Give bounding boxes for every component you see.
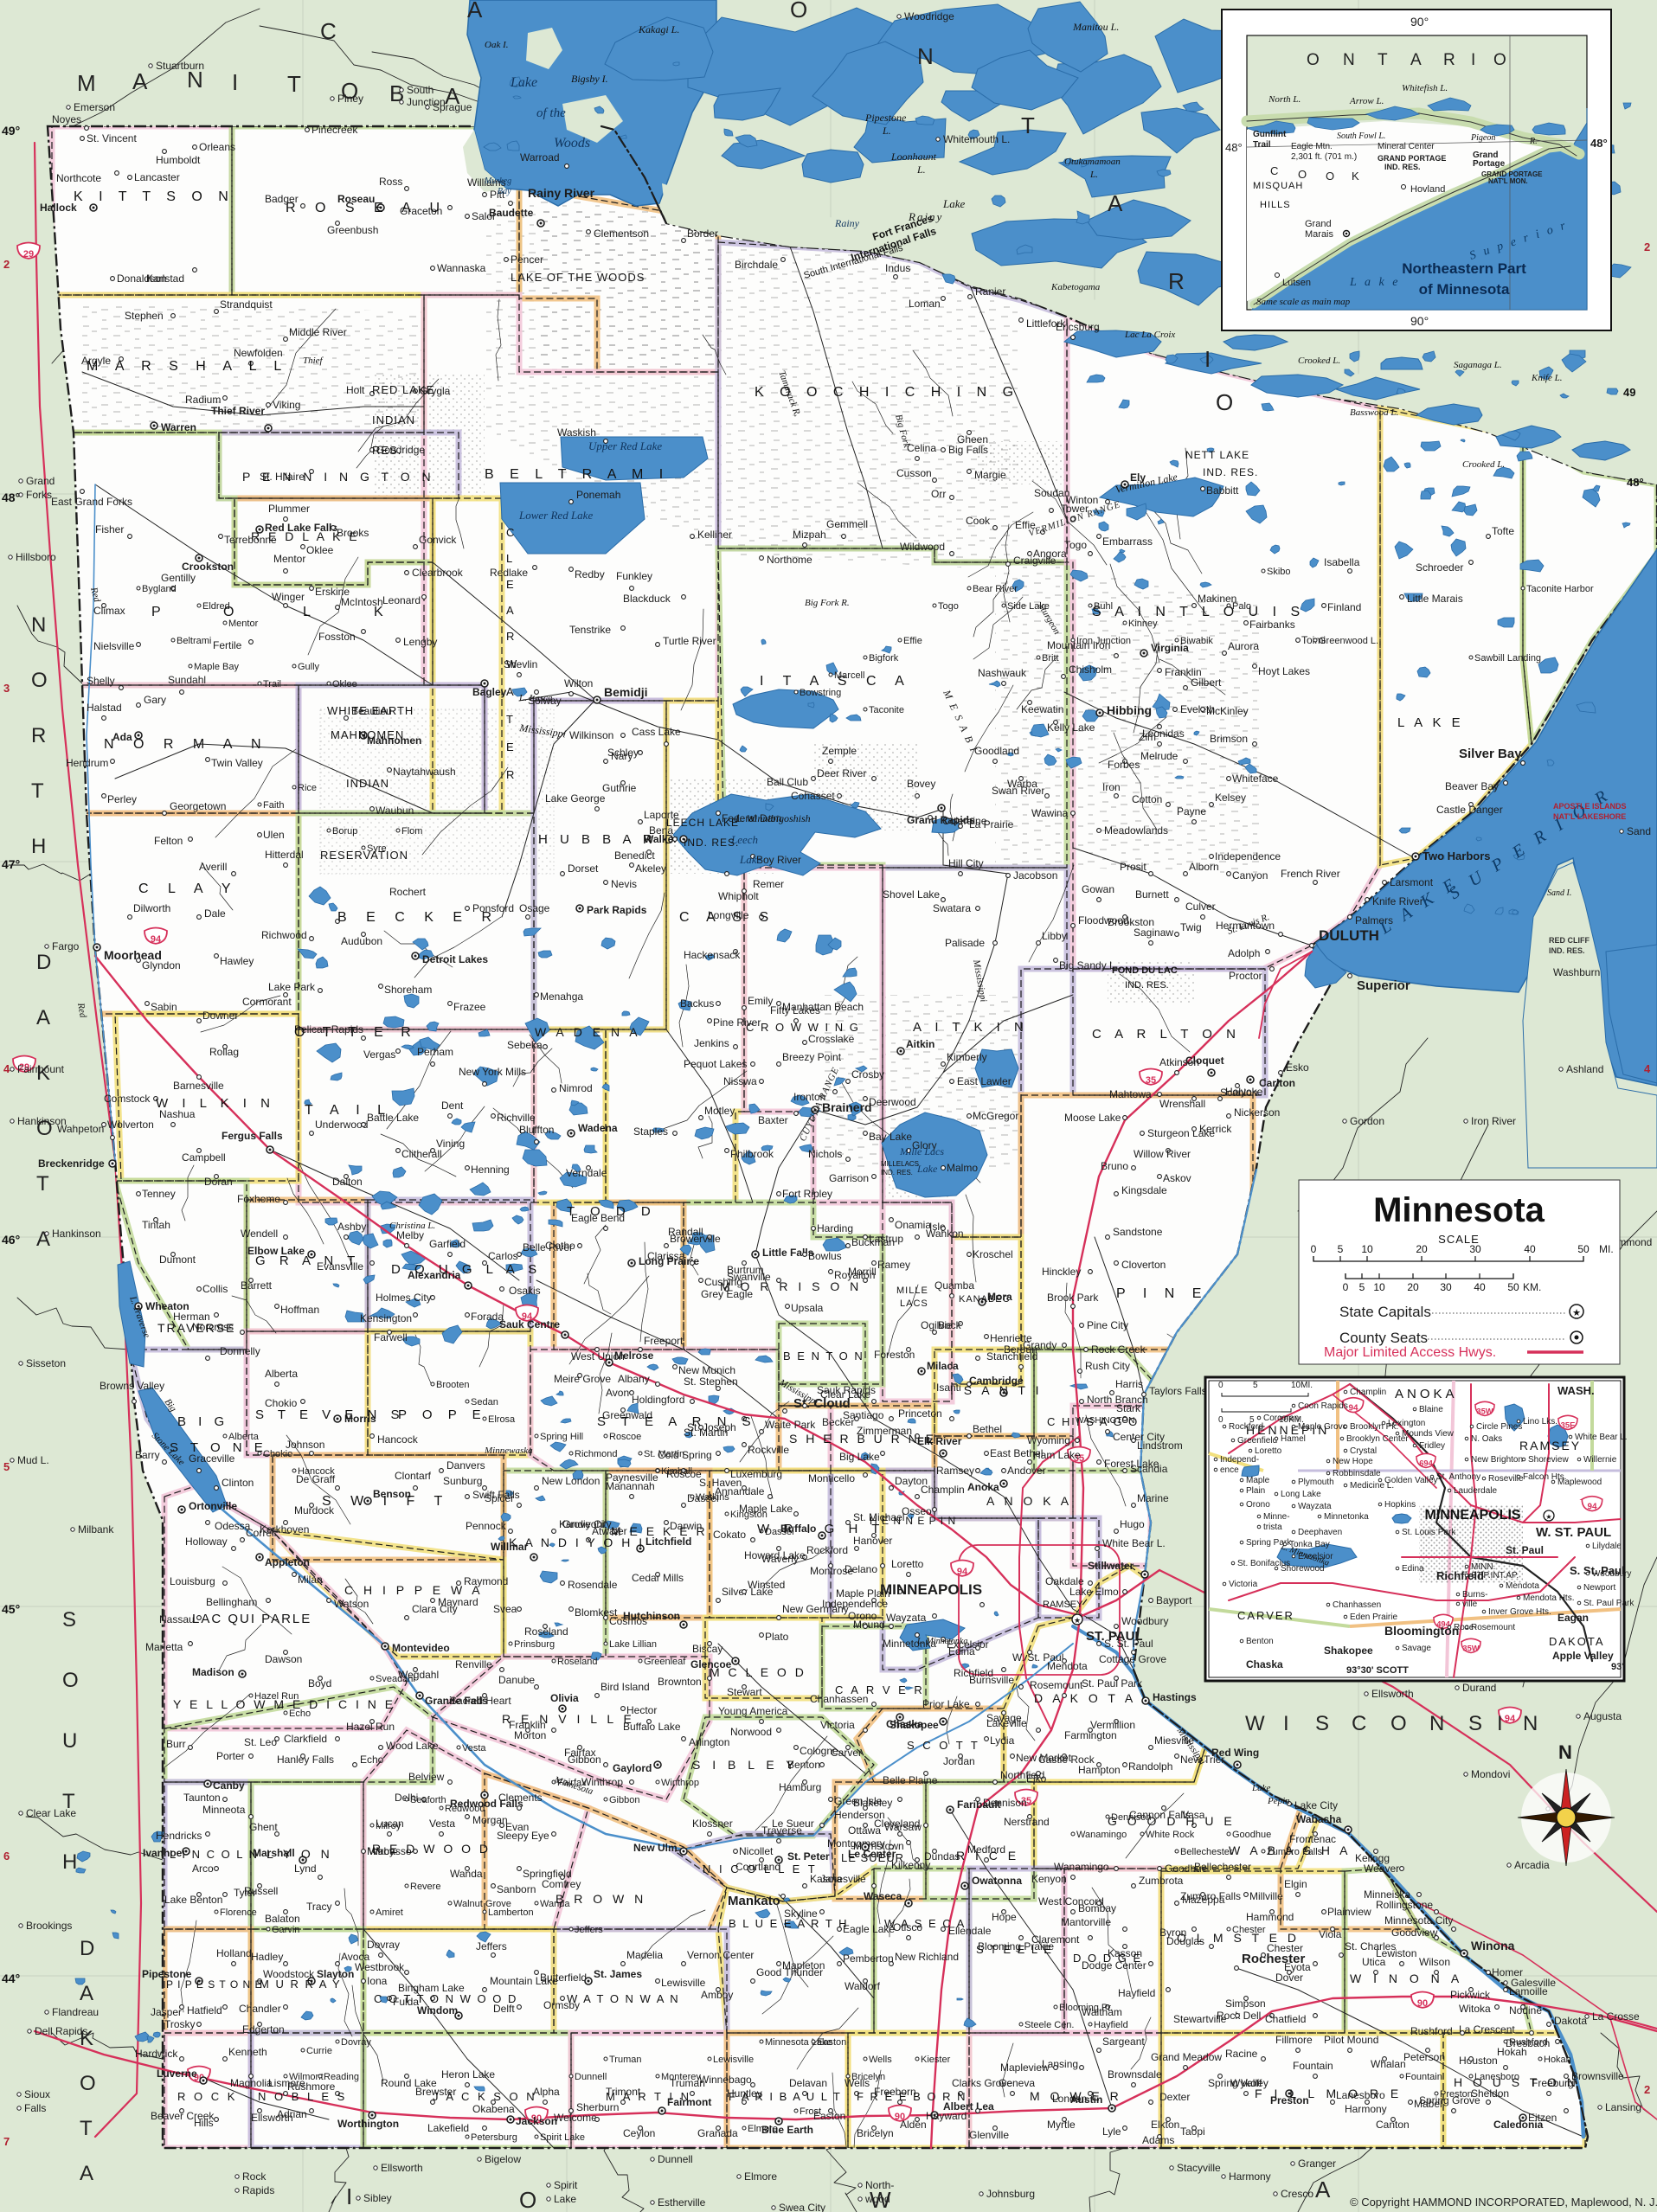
svg-text:DULUTH: DULUTH bbox=[1319, 927, 1379, 944]
svg-text:Hokah: Hokah bbox=[1544, 2055, 1571, 2065]
svg-text:Victoria: Victoria bbox=[820, 1719, 855, 1731]
svg-text:S C O T T: S C O T T bbox=[907, 1739, 980, 1752]
svg-text:Henriette: Henriette bbox=[990, 1332, 1032, 1344]
svg-text:Harmony: Harmony bbox=[1229, 2170, 1271, 2183]
svg-text:N: N bbox=[1558, 1741, 1572, 1763]
svg-text:Racine: Racine bbox=[1225, 2048, 1258, 2060]
svg-text:White Bear L.: White Bear L. bbox=[1102, 1537, 1166, 1549]
svg-text:Bigfork: Bigfork bbox=[869, 653, 899, 664]
svg-text:Minnewaska: Minnewaska bbox=[484, 1446, 533, 1456]
svg-text:Lynd: Lynd bbox=[294, 1863, 317, 1875]
svg-text:Bellingham: Bellingham bbox=[206, 1596, 257, 1608]
svg-text:Edgerton: Edgerton bbox=[242, 2023, 285, 2036]
svg-text:Welcome: Welcome bbox=[554, 2112, 597, 2124]
svg-text:Spring Hill: Spring Hill bbox=[540, 1432, 583, 1442]
svg-text:Y E L L O W M E D I C I N E: Y E L L O W M E D I C I N E bbox=[173, 1697, 395, 1711]
svg-text:Perham: Perham bbox=[417, 1046, 453, 1058]
svg-text:R E D W O O D: R E D W O O D bbox=[372, 1842, 491, 1856]
svg-text:Aurora: Aurora bbox=[1228, 640, 1259, 652]
svg-text:Lake: Lake bbox=[942, 197, 966, 210]
svg-text:La Crescent: La Crescent bbox=[1459, 2023, 1515, 2036]
svg-text:Melrude: Melrude bbox=[1140, 750, 1179, 762]
svg-text:Hackensack: Hackensack bbox=[684, 949, 741, 961]
svg-text:Luverne: Luverne bbox=[157, 2068, 197, 2080]
svg-text:North L.: North L. bbox=[1268, 94, 1301, 105]
svg-text:94: 94 bbox=[1349, 1404, 1358, 1414]
svg-text:Clear Lake: Clear Lake bbox=[820, 1388, 870, 1401]
svg-text:S W I F T: S W I F T bbox=[322, 1494, 450, 1509]
svg-text:Clear Lake: Clear Lake bbox=[26, 1807, 76, 1819]
svg-text:Balaton: Balaton bbox=[265, 1913, 300, 1925]
svg-text:5: 5 bbox=[1359, 1281, 1365, 1293]
svg-text:4: 4 bbox=[3, 1062, 10, 1075]
svg-text:Mounds View: Mounds View bbox=[1402, 1429, 1455, 1439]
svg-text:Boyd: Boyd bbox=[308, 1677, 331, 1689]
svg-text:S T O N E: S T O N E bbox=[170, 1440, 267, 1455]
svg-text:TRAVERSE: TRAVERSE bbox=[157, 1321, 235, 1335]
svg-text:Flom: Flom bbox=[401, 826, 422, 837]
svg-text:Culver: Culver bbox=[1185, 901, 1216, 913]
svg-text:Lake: Lake bbox=[739, 853, 762, 866]
svg-text:30: 30 bbox=[1440, 1281, 1452, 1293]
svg-text:Ceylon: Ceylon bbox=[623, 2127, 655, 2139]
svg-text:McGregor: McGregor bbox=[973, 1110, 1018, 1122]
svg-text:Hamburg: Hamburg bbox=[779, 1781, 821, 1793]
svg-text:St. Leo: St. Leo bbox=[244, 1736, 277, 1748]
svg-text:T O D D: T O D D bbox=[567, 1204, 657, 1219]
svg-text:Winsted: Winsted bbox=[748, 1579, 785, 1591]
svg-text:Viking: Viking bbox=[273, 399, 300, 411]
svg-text:LACS: LACS bbox=[900, 1298, 928, 1309]
svg-text:40: 40 bbox=[1474, 1281, 1486, 1293]
svg-text:Tracy: Tracy bbox=[306, 1901, 332, 1913]
svg-text:Melby: Melby bbox=[396, 1229, 424, 1241]
svg-text:S I B L E Y: S I B L E Y bbox=[692, 1758, 799, 1772]
svg-text:Whipholt: Whipholt bbox=[718, 890, 759, 902]
svg-text:2,301 ft. (701 m.): 2,301 ft. (701 m.) bbox=[1291, 152, 1357, 162]
svg-text:Loman: Loman bbox=[909, 298, 941, 310]
svg-text:Vining: Vining bbox=[436, 1138, 465, 1150]
svg-text:Dell Rapids: Dell Rapids bbox=[35, 2025, 87, 2037]
svg-text:C A S S: C A S S bbox=[679, 910, 775, 925]
svg-text:Hanley Falls: Hanley Falls bbox=[277, 1754, 334, 1766]
svg-text:W: W bbox=[506, 657, 517, 670]
svg-text:Hendricks: Hendricks bbox=[156, 1830, 202, 1842]
svg-text:T A I L: T A I L bbox=[305, 1103, 392, 1118]
svg-text:Independ-: Independ- bbox=[1220, 1455, 1259, 1465]
svg-text:Libby: Libby bbox=[1042, 930, 1067, 942]
svg-text:Backus: Backus bbox=[680, 997, 714, 1010]
svg-text:O: O bbox=[80, 2072, 96, 2095]
svg-text:Moose Lake: Moose Lake bbox=[1064, 1112, 1121, 1124]
svg-text:0: 0 bbox=[1343, 1281, 1349, 1293]
svg-text:Lake Lillian: Lake Lillian bbox=[609, 1639, 657, 1650]
svg-text:Trosky: Trosky bbox=[164, 2018, 196, 2030]
svg-text:Pequot Lakes: Pequot Lakes bbox=[684, 1058, 747, 1070]
svg-text:Lyle: Lyle bbox=[1102, 2125, 1121, 2138]
svg-text:Brooklyn Pk.: Brooklyn Pk. bbox=[1350, 1422, 1398, 1432]
svg-text:Mentor: Mentor bbox=[273, 553, 305, 565]
svg-text:Gary: Gary bbox=[144, 694, 166, 706]
svg-text:B R O W N: B R O W N bbox=[556, 1892, 646, 1906]
svg-text:Marais: Marais bbox=[1305, 229, 1334, 240]
svg-text:Milbank: Milbank bbox=[78, 1523, 114, 1536]
svg-text:Bruno: Bruno bbox=[1101, 1160, 1128, 1172]
svg-text:Wayzata: Wayzata bbox=[886, 1612, 927, 1624]
svg-text:Babbitt: Babbitt bbox=[1206, 484, 1239, 497]
svg-text:Hoyt Lakes: Hoyt Lakes bbox=[1258, 665, 1310, 677]
svg-text:Rushford: Rushford bbox=[1410, 2025, 1453, 2037]
svg-text:Sacred Heart: Sacred Heart bbox=[450, 1695, 511, 1707]
svg-text:Greenwood L.: Greenwood L. bbox=[1319, 636, 1378, 646]
svg-text:48°: 48° bbox=[1590, 137, 1608, 150]
svg-text:IND. RES.: IND. RES. bbox=[1125, 980, 1169, 991]
svg-text:Rollag: Rollag bbox=[209, 1046, 239, 1058]
svg-text:Crookston: Crookston bbox=[182, 561, 234, 573]
svg-text:Rockford: Rockford bbox=[806, 1544, 848, 1556]
svg-text:HILLS: HILLS bbox=[1260, 200, 1291, 210]
svg-text:Pickwick: Pickwick bbox=[1450, 1989, 1491, 2001]
svg-text:Cohasset: Cohasset bbox=[791, 790, 835, 802]
svg-text:Knife L.: Knife L. bbox=[1531, 373, 1562, 383]
svg-text:O: O bbox=[790, 0, 807, 22]
svg-text:Savage: Savage bbox=[1402, 1644, 1431, 1653]
svg-text:St. Peter: St. Peter bbox=[787, 1850, 830, 1863]
svg-text:Monterey: Monterey bbox=[661, 2072, 701, 2082]
svg-text:Heron Lake: Heron Lake bbox=[441, 2068, 495, 2081]
svg-text:Elgin: Elgin bbox=[1284, 1878, 1307, 1890]
svg-text:Dunnell: Dunnell bbox=[658, 2153, 693, 2165]
svg-text:Bay Lake: Bay Lake bbox=[869, 1131, 912, 1143]
svg-text:Rosendale: Rosendale bbox=[568, 1579, 618, 1591]
svg-text:Ross: Ross bbox=[379, 176, 402, 188]
svg-text:Gentilly: Gentilly bbox=[161, 572, 196, 584]
svg-text:Two Harbors: Two Harbors bbox=[1423, 850, 1491, 862]
svg-text:Faith: Faith bbox=[263, 800, 284, 811]
svg-text:Vesta: Vesta bbox=[462, 1743, 486, 1754]
svg-text:35: 35 bbox=[1146, 1075, 1156, 1086]
svg-text:S. St. Paul: S. St. Paul bbox=[1104, 1638, 1153, 1650]
svg-text:N O B L E S: N O B L E S bbox=[258, 2090, 347, 2103]
svg-text:Akeley: Akeley bbox=[635, 862, 666, 875]
svg-text:W. ST. PAUL: W. ST. PAUL bbox=[1536, 1525, 1611, 1540]
svg-text:Bock: Bock bbox=[938, 1319, 962, 1331]
svg-text:Steele Cen.: Steele Cen. bbox=[1024, 2020, 1074, 2030]
svg-text:C: C bbox=[1352, 1712, 1366, 1735]
svg-text:Margie: Margie bbox=[974, 469, 1006, 481]
svg-text:Sprague: Sprague bbox=[433, 101, 472, 113]
svg-text:Cresco: Cresco bbox=[1281, 2188, 1313, 2200]
svg-text:Chanhassen: Chanhassen bbox=[1333, 1600, 1381, 1610]
svg-text:Stewart: Stewart bbox=[727, 1686, 762, 1698]
svg-text:Prior Lake: Prior Lake bbox=[922, 1698, 970, 1710]
svg-text:Sleepy Eye: Sleepy Eye bbox=[497, 1830, 549, 1842]
svg-text:Lilydale: Lilydale bbox=[1592, 1542, 1622, 1551]
svg-text:Newfolden: Newfolden bbox=[234, 347, 283, 359]
svg-text:Maple Grove: Maple Grove bbox=[1298, 1422, 1348, 1432]
svg-text:Clearbrook: Clearbrook bbox=[412, 567, 464, 579]
svg-text:Strandquist: Strandquist bbox=[220, 298, 273, 311]
svg-text:Cook: Cook bbox=[966, 515, 991, 527]
svg-text:APOSTLE ISLANDS: APOSTLE ISLANDS bbox=[1553, 802, 1627, 811]
svg-text:Nichols: Nichols bbox=[808, 1148, 842, 1160]
svg-text:Forbes: Forbes bbox=[1108, 759, 1140, 771]
svg-text:A: A bbox=[506, 685, 514, 698]
svg-text:Plummer: Plummer bbox=[268, 503, 310, 515]
svg-text:Shakopee: Shakopee bbox=[1324, 1645, 1373, 1657]
svg-text:Jeffers: Jeffers bbox=[476, 1940, 507, 1952]
svg-text:Cedar Mills: Cedar Mills bbox=[632, 1572, 684, 1584]
svg-text:★: ★ bbox=[1572, 1308, 1581, 1318]
svg-text:Wilton: Wilton bbox=[564, 677, 593, 689]
svg-text:Swea City: Swea City bbox=[779, 2202, 825, 2212]
svg-text:Thief River: Thief River bbox=[211, 405, 265, 417]
svg-text:Echo: Echo bbox=[360, 1754, 384, 1766]
svg-text:90: 90 bbox=[1417, 1998, 1428, 2009]
svg-text:Comstock: Comstock bbox=[104, 1093, 151, 1105]
svg-text:Jeffers: Jeffers bbox=[575, 1925, 603, 1935]
svg-text:Hankinson: Hankinson bbox=[52, 1228, 101, 1240]
svg-text:Mapleview: Mapleview bbox=[1000, 2061, 1050, 2074]
svg-text:Upper Red Lake: Upper Red Lake bbox=[588, 439, 662, 452]
svg-text:R E N V I L L E: R E N V I L L E bbox=[502, 1712, 635, 1726]
svg-text:Goodview: Goodview bbox=[1391, 1927, 1438, 1939]
svg-text:Edina: Edina bbox=[948, 1645, 975, 1657]
svg-text:Brooklyn Center: Brooklyn Center bbox=[1346, 1434, 1409, 1444]
svg-text:Danvers: Danvers bbox=[446, 1459, 485, 1471]
svg-text:Independence: Independence bbox=[1215, 850, 1281, 862]
svg-text:Ashby: Ashby bbox=[337, 1221, 366, 1233]
svg-text:W R I G H T: W R I G H T bbox=[757, 1522, 884, 1536]
svg-text:N: N bbox=[31, 613, 46, 637]
svg-text:Stuartburn: Stuartburn bbox=[156, 60, 204, 72]
svg-text:Willow River: Willow River bbox=[1134, 1148, 1191, 1160]
svg-text:Delano: Delano bbox=[845, 1563, 877, 1575]
svg-text:Winona: Winona bbox=[1471, 1939, 1515, 1952]
svg-text:Ellsworth: Ellsworth bbox=[1371, 1688, 1414, 1700]
svg-text:Hancock: Hancock bbox=[298, 1466, 335, 1477]
svg-text:Johnsburg: Johnsburg bbox=[986, 2188, 1035, 2200]
svg-text:Biscay: Biscay bbox=[692, 1643, 723, 1655]
svg-text:Payne: Payne bbox=[1177, 805, 1206, 817]
svg-text:Cloverton: Cloverton bbox=[1121, 1259, 1166, 1271]
svg-text:Sand: Sand bbox=[1627, 825, 1651, 837]
svg-text:Cologne: Cologne bbox=[800, 1745, 838, 1757]
svg-text:Eagan: Eagan bbox=[1557, 1612, 1589, 1624]
svg-text:Jasper: Jasper bbox=[151, 2006, 182, 2018]
svg-text:Cottage Grove: Cottage Grove bbox=[1099, 1653, 1166, 1665]
svg-text:Remer: Remer bbox=[753, 878, 784, 890]
svg-text:Chatfield: Chatfield bbox=[1265, 2013, 1306, 2025]
svg-text:A: A bbox=[506, 604, 514, 617]
svg-text:Andover: Andover bbox=[1007, 1465, 1046, 1477]
svg-text:Naytahwaush: Naytahwaush bbox=[393, 766, 456, 778]
svg-text:Bricelyn: Bricelyn bbox=[857, 2127, 894, 2139]
svg-text:St. Stephen: St. Stephen bbox=[684, 1375, 738, 1388]
svg-text:Chaska: Chaska bbox=[886, 1718, 923, 1730]
svg-text:Northome: Northome bbox=[767, 554, 812, 566]
svg-text:O: O bbox=[1390, 1712, 1407, 1735]
svg-text:Loretto: Loretto bbox=[891, 1558, 924, 1570]
svg-text:R: R bbox=[31, 724, 46, 747]
svg-text:Kakagi L.: Kakagi L. bbox=[638, 23, 679, 35]
svg-text:Prosit: Prosit bbox=[1120, 861, 1146, 873]
svg-text:Hanover: Hanover bbox=[853, 1535, 892, 1547]
svg-text:Shovel Lake: Shovel Lake bbox=[883, 888, 940, 901]
svg-text:Gheen: Gheen bbox=[957, 433, 988, 446]
svg-text:Gunflint: Gunflint bbox=[1253, 130, 1287, 139]
svg-text:Sabin: Sabin bbox=[151, 1001, 177, 1013]
svg-text:Wanda: Wanda bbox=[450, 1868, 483, 1880]
svg-text:Breckenridge: Breckenridge bbox=[38, 1157, 105, 1170]
svg-text:Alberta: Alberta bbox=[265, 1368, 298, 1380]
svg-text:Maple Bay: Maple Bay bbox=[194, 662, 239, 672]
svg-text:Hankinson: Hankinson bbox=[17, 1115, 67, 1127]
svg-text:Arcadia: Arcadia bbox=[1514, 1859, 1550, 1871]
svg-text:Middle River: Middle River bbox=[289, 326, 347, 338]
svg-text:Howard Lake: Howard Lake bbox=[744, 1549, 806, 1561]
svg-text:Hadley: Hadley bbox=[251, 1951, 283, 1963]
svg-text:Barry: Barry bbox=[135, 1449, 160, 1461]
svg-text:Long Lake: Long Lake bbox=[1281, 1490, 1321, 1499]
svg-text:Wildwood: Wildwood bbox=[900, 541, 945, 553]
svg-text:Swatara: Swatara bbox=[933, 902, 971, 914]
svg-text:48°: 48° bbox=[1225, 141, 1243, 154]
svg-text:trista: trista bbox=[1263, 1523, 1282, 1532]
svg-text:NETT LAKE: NETT LAKE bbox=[1185, 449, 1249, 461]
svg-text:Bygland: Bygland bbox=[142, 584, 177, 594]
svg-text:Rollingstone: Rollingstone bbox=[1376, 1899, 1433, 1911]
svg-text:Richville: Richville bbox=[497, 1112, 536, 1124]
svg-text:Morrill: Morrill bbox=[848, 1266, 877, 1278]
svg-text:Fisher: Fisher bbox=[95, 523, 124, 535]
svg-text:Milroy: Milroy bbox=[376, 1821, 401, 1831]
svg-text:Rosemount: Rosemount bbox=[1030, 1679, 1083, 1691]
svg-text:Cleveland: Cleveland bbox=[874, 1818, 920, 1830]
svg-text:Sheldon: Sheldon bbox=[1471, 2087, 1509, 2100]
svg-text:N I C O L L E T: N I C O L L E T bbox=[703, 1863, 818, 1875]
svg-text:C A R L T O N: C A R L T O N bbox=[1092, 1027, 1241, 1042]
svg-text:Gully: Gully bbox=[298, 662, 320, 672]
svg-text:Hamel: Hamel bbox=[1281, 1434, 1306, 1444]
svg-text:O: O bbox=[1326, 170, 1334, 183]
svg-text:Bricelyn: Bricelyn bbox=[851, 2072, 885, 2082]
svg-text:Greenleaf: Greenleaf bbox=[644, 1657, 686, 1667]
svg-text:Brookings: Brookings bbox=[26, 1920, 72, 1932]
svg-text:Mendota Hts.: Mendota Hts. bbox=[1523, 1593, 1574, 1603]
svg-text:O: O bbox=[1493, 51, 1506, 69]
svg-text:Victoria: Victoria bbox=[1229, 1580, 1258, 1589]
svg-text:Fairfax: Fairfax bbox=[564, 1747, 596, 1759]
svg-text:Saginaw: Saginaw bbox=[1134, 926, 1173, 939]
svg-text:Sioux: Sioux bbox=[24, 2088, 50, 2100]
svg-text:Bear River: Bear River bbox=[973, 584, 1018, 594]
svg-text:Kingsdale: Kingsdale bbox=[1121, 1184, 1167, 1196]
svg-text:Grand: Grand bbox=[26, 475, 55, 487]
svg-text:L Y O N: L Y O N bbox=[267, 1847, 333, 1861]
svg-text:East Lawler: East Lawler bbox=[957, 1075, 1012, 1087]
svg-text:Halstad: Halstad bbox=[87, 702, 122, 714]
svg-text:Orono: Orono bbox=[1246, 1500, 1270, 1510]
svg-text:Stacyville: Stacyville bbox=[1177, 2162, 1221, 2174]
svg-text:Shoreview: Shoreview bbox=[1528, 1455, 1569, 1465]
svg-text:Ham Lake: Ham Lake bbox=[1033, 1449, 1081, 1461]
svg-text:A: A bbox=[132, 68, 148, 94]
svg-text:O T T E R: O T T E R bbox=[294, 1025, 418, 1040]
svg-text:O: O bbox=[62, 1669, 79, 1692]
svg-text:93°30' SCOTT: 93°30' SCOTT bbox=[1346, 1665, 1409, 1676]
svg-text:Nevis: Nevis bbox=[611, 878, 637, 890]
svg-text:★: ★ bbox=[1074, 1616, 1081, 1625]
svg-text:Dexter: Dexter bbox=[1159, 2091, 1190, 2103]
svg-text:Baudette: Baudette bbox=[489, 207, 534, 219]
svg-text:Makinen: Makinen bbox=[1198, 593, 1236, 605]
svg-text:Wabasha: Wabasha bbox=[1296, 1813, 1342, 1825]
svg-text:Minnesota City: Minnesota City bbox=[1384, 1914, 1453, 1927]
svg-text:Trail: Trail bbox=[1253, 140, 1271, 150]
svg-text:Foreston: Foreston bbox=[874, 1349, 915, 1361]
svg-text:St. Paul: St. Paul bbox=[1506, 1544, 1544, 1556]
svg-text:Falls: Falls bbox=[24, 2102, 46, 2114]
svg-text:Nerstrand: Nerstrand bbox=[1004, 1816, 1050, 1828]
svg-text:Hopkins: Hopkins bbox=[1384, 1500, 1416, 1510]
svg-text:N: N bbox=[1343, 51, 1355, 69]
svg-text:Iron: Iron bbox=[1102, 781, 1121, 793]
svg-text:Nassau: Nassau bbox=[159, 1613, 195, 1625]
svg-text:Champlin: Champlin bbox=[921, 1484, 965, 1496]
svg-text:Ericsburg: Ericsburg bbox=[1056, 321, 1100, 333]
svg-text:94: 94 bbox=[1505, 1714, 1516, 1724]
svg-text:Stanchfield: Stanchfield bbox=[986, 1350, 1037, 1362]
svg-text:Sand I.: Sand I. bbox=[1547, 888, 1571, 898]
svg-text:Crosby: Crosby bbox=[851, 1068, 884, 1080]
svg-text:wood: wood bbox=[864, 2193, 890, 2205]
svg-text:Plainview: Plainview bbox=[1327, 1906, 1371, 1918]
svg-text:H: H bbox=[62, 1850, 77, 1874]
svg-text:Ball Club: Ball Club bbox=[767, 776, 808, 788]
svg-text:Oklee: Oklee bbox=[306, 544, 334, 556]
svg-text:B E L T R A M I: B E L T R A M I bbox=[485, 467, 669, 482]
svg-text:2: 2 bbox=[1644, 240, 1650, 253]
svg-text:Petersburg: Petersburg bbox=[471, 2132, 517, 2143]
svg-text:T: T bbox=[1021, 112, 1035, 138]
svg-text:Taopi: Taopi bbox=[1180, 2125, 1205, 2138]
svg-text:Dawson: Dawson bbox=[265, 1653, 302, 1665]
svg-text:S T E E L E: S T E E L E bbox=[976, 1943, 1053, 1956]
svg-text:49: 49 bbox=[1623, 386, 1635, 399]
svg-text:IND. RES.: IND. RES. bbox=[1384, 163, 1421, 171]
svg-text:10: 10 bbox=[1373, 1281, 1385, 1293]
svg-text:Rainy: Rainy bbox=[834, 217, 860, 229]
svg-text:H U B B A R D: H U B B A R D bbox=[538, 832, 678, 847]
svg-text:10: 10 bbox=[1361, 1243, 1373, 1255]
svg-text:Doran: Doran bbox=[204, 1176, 233, 1188]
svg-text:Gaylord: Gaylord bbox=[613, 1762, 652, 1774]
svg-text:Oak I.: Oak I. bbox=[485, 40, 509, 50]
svg-text:Woodridge: Woodridge bbox=[904, 10, 954, 22]
svg-text:Dovray: Dovray bbox=[341, 2037, 371, 2048]
svg-text:Downer: Downer bbox=[202, 1010, 238, 1022]
svg-text:Dover: Dover bbox=[1275, 1972, 1303, 1984]
svg-text:Comfrey: Comfrey bbox=[542, 1878, 581, 1890]
svg-text:Perley: Perley bbox=[107, 793, 137, 805]
svg-text:Hayfield: Hayfield bbox=[1094, 2020, 1128, 2030]
svg-text:Mille Lacs: Mille Lacs bbox=[899, 1145, 944, 1157]
svg-text:Amiret: Amiret bbox=[376, 1907, 403, 1918]
svg-text:Excelsior: Excelsior bbox=[1298, 1552, 1333, 1561]
svg-text:Iona: Iona bbox=[367, 1975, 388, 1987]
svg-text:Preston: Preston bbox=[1440, 2089, 1473, 2100]
